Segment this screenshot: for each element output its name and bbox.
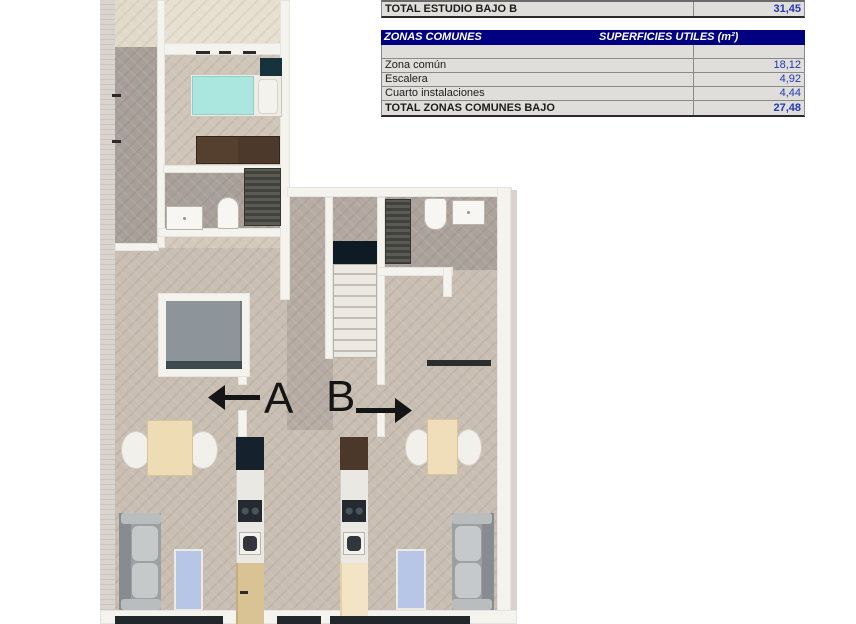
window-strip bbox=[330, 616, 470, 624]
total-zonas-label: TOTAL ZONAS COMUNES BAJO bbox=[382, 101, 693, 115]
sofa-b bbox=[452, 513, 494, 610]
bed-pillow bbox=[258, 79, 278, 114]
rug-a bbox=[174, 549, 203, 611]
area-tables-panel: TOTAL ESTUDIO BAJO B 31,45 ZONAS COMUNES… bbox=[381, 0, 805, 117]
cuarto-instalaciones-value: 4,44 bbox=[693, 87, 804, 100]
sofa-b-back bbox=[482, 513, 494, 610]
zona-comun-value: 18,12 bbox=[693, 59, 804, 72]
radiator-b bbox=[385, 199, 411, 264]
sofa-b-armrest bbox=[452, 513, 492, 524]
sofa-a-armrest bbox=[121, 599, 161, 610]
door-mark-icon bbox=[112, 140, 121, 143]
table-row: Zona común 18,12 bbox=[381, 59, 805, 73]
empty-value-cell bbox=[693, 45, 804, 58]
sofa-a-cushion bbox=[132, 526, 158, 561]
total-estudio-value: 31,45 bbox=[693, 2, 804, 16]
bed-headboard bbox=[260, 58, 282, 76]
sofa-b-armrest bbox=[452, 599, 492, 610]
floor-room-top bbox=[163, 0, 280, 43]
sink-b-drain-icon bbox=[467, 211, 470, 214]
cooktop-a bbox=[238, 500, 262, 522]
cooktop-b bbox=[342, 500, 366, 522]
escalera-value: 4,92 bbox=[693, 73, 804, 86]
toilet-a bbox=[217, 197, 239, 229]
kitchen-sink-b-basin bbox=[347, 536, 361, 551]
wall-topblock-right bbox=[280, 0, 290, 300]
window-strip bbox=[277, 616, 321, 624]
kitchen-sink-a-basin bbox=[243, 536, 257, 551]
entry-door-b bbox=[340, 563, 368, 624]
sofa-a-cushion bbox=[132, 563, 158, 598]
floor-corridor bbox=[115, 47, 157, 248]
superficies-utiles-header: SUPERFICIES UTILES (m²) bbox=[599, 30, 738, 45]
unit-a-label: A bbox=[264, 377, 293, 421]
zona-comun-label: Zona común bbox=[382, 59, 693, 72]
kitchen-sink-b bbox=[343, 532, 365, 555]
sofa-a-back bbox=[119, 513, 131, 610]
window-strip bbox=[115, 616, 223, 624]
kitchen-a-fridge bbox=[236, 437, 264, 470]
unit-b-arrow-icon bbox=[356, 395, 412, 426]
chair bbox=[455, 429, 482, 466]
wall-right-outer bbox=[497, 187, 511, 624]
shower-a bbox=[244, 168, 281, 226]
sofa-a bbox=[119, 513, 161, 610]
door-mark-icon bbox=[219, 51, 231, 54]
sofa-b-cushion bbox=[455, 563, 481, 598]
stairs-landing bbox=[333, 241, 377, 264]
table-row: Cuarto instalaciones 4,44 bbox=[381, 87, 805, 101]
sofa-a-armrest bbox=[121, 513, 161, 524]
table-b bbox=[427, 419, 458, 475]
escalera-label: Escalera bbox=[382, 73, 693, 86]
cuarto-instalaciones-label: Cuarto instalaciones bbox=[382, 87, 693, 100]
wall-stairs-right bbox=[377, 197, 385, 385]
table-a bbox=[147, 420, 193, 476]
sink-a-drain-icon bbox=[183, 217, 186, 220]
unit-a-arrow-icon bbox=[208, 383, 260, 413]
table-row: TOTAL ESTUDIO BAJO B 31,45 bbox=[381, 0, 805, 18]
rug-b bbox=[396, 549, 426, 610]
table-row-empty bbox=[381, 45, 805, 59]
door-mark-icon bbox=[196, 51, 210, 54]
zonas-comunes-header: ZONAS COMUNES SUPERFICIES UTILES (m²) bbox=[381, 30, 805, 45]
wall-corridor-right bbox=[157, 0, 165, 248]
zonas-comunes-header-title: ZONAS COMUNES bbox=[384, 31, 482, 43]
table-row-total: TOTAL ZONAS COMUNES BAJO 27,48 bbox=[381, 101, 805, 117]
door-mark-icon bbox=[243, 51, 256, 54]
total-zonas-value: 27,48 bbox=[693, 101, 804, 115]
sofa-b-cushion bbox=[455, 526, 481, 561]
patio-floor bbox=[166, 301, 242, 369]
floor-hall-top bbox=[115, 0, 157, 47]
door-a-handle-icon bbox=[240, 591, 248, 594]
unit-b-label: B bbox=[326, 375, 355, 419]
stairs bbox=[333, 264, 377, 358]
kitchen-sink-a bbox=[239, 532, 261, 555]
toilet-b bbox=[424, 198, 447, 230]
screenshot-root: A B TOTAL ESTUDIO BAJO B 31,45 ZONAS COM… bbox=[0, 0, 856, 624]
exterior-edge-right bbox=[511, 190, 517, 620]
kitchen-b-fridge bbox=[340, 437, 368, 470]
wall-corridor-bottom bbox=[115, 243, 159, 251]
wall-shelf-b bbox=[427, 360, 491, 366]
wall-stairs-left bbox=[325, 197, 333, 359]
wardrobe bbox=[196, 136, 280, 164]
table-row: Escalera 4,92 bbox=[381, 73, 805, 87]
wall-bath-b-bottom bbox=[377, 267, 453, 276]
door-mark-icon bbox=[112, 94, 121, 97]
patio-edge bbox=[166, 361, 242, 369]
bed-mattress bbox=[192, 76, 254, 115]
zonas-comunes-table: ZONAS COMUNES SUPERFICIES UTILES (m²) Zo… bbox=[381, 30, 805, 117]
wall-rightsection-top bbox=[287, 187, 512, 197]
estudio-total-table: TOTAL ESTUDIO BAJO B 31,45 bbox=[381, 0, 805, 18]
wall-unit-a-door-stub bbox=[238, 410, 247, 437]
total-estudio-label: TOTAL ESTUDIO BAJO B bbox=[382, 2, 693, 16]
wall-bath-b-stub bbox=[443, 267, 452, 297]
empty-label-cell bbox=[382, 45, 693, 58]
